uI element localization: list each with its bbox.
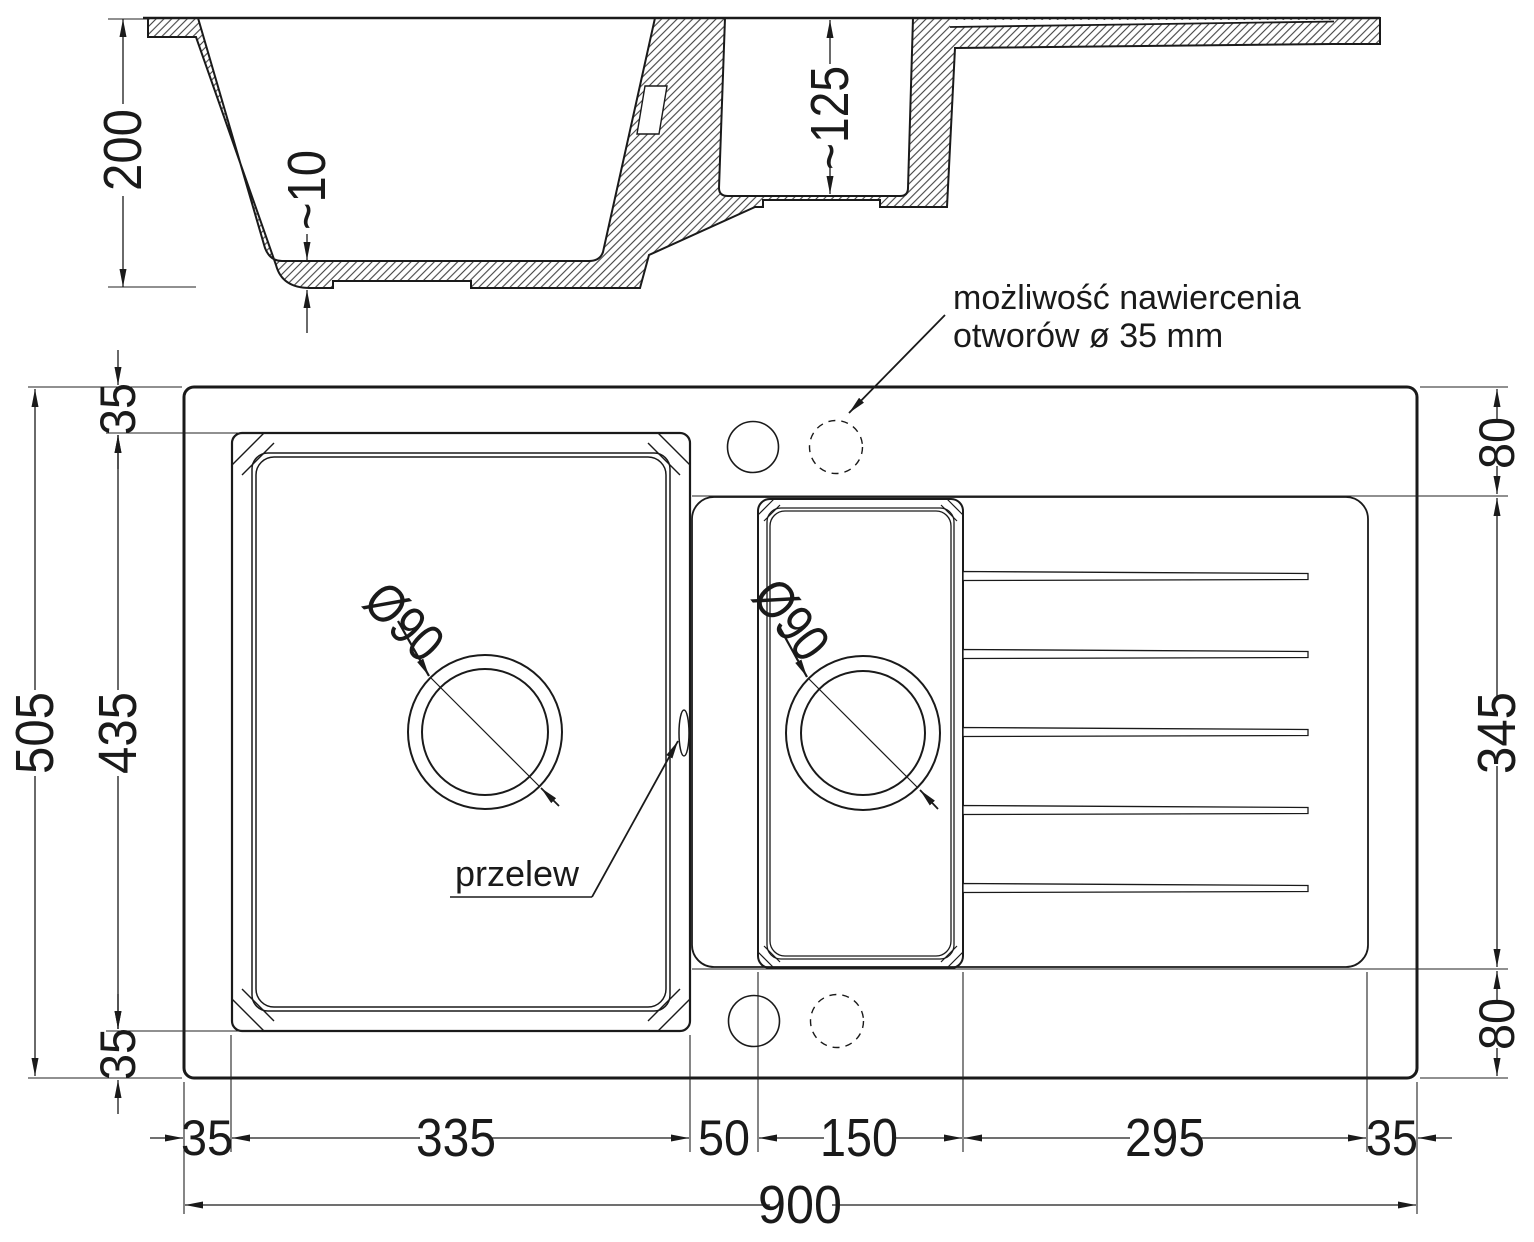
dim-small-bowl-depth: ~125 [800,20,860,194]
dim-total-width: 900 [185,1175,1416,1235]
plan-view: Ø90 Ø90 [184,279,1417,1078]
bottom-seg-label: 335 [416,1108,496,1168]
dim-bowl-height: 435 [88,435,148,1029]
drill-note-line2: otworów ø 35 mm [953,317,1223,355]
right-top-label: 80 [1469,417,1525,469]
bottom-seg-label: 35 [1366,1110,1418,1166]
dim-right-bottom: 80 [1469,971,1525,1076]
dim-total-height: 505 [5,389,65,1076]
bottom-seg-label: 150 [820,1108,898,1168]
dim-top-inset: 35 [90,350,146,469]
right-middle-label: 345 [1467,692,1527,774]
drainer-groove [963,572,1308,581]
bowl-height-label: 435 [88,692,148,774]
small-bowl-depth-label: ~125 [800,66,860,170]
total-height-label: 505 [5,692,65,774]
dim-bottom-row: 35 335 50 150 295 35 [150,1108,1452,1168]
sink-technical-drawing: 200 ~10 ~125 [0,0,1534,1242]
bottom-seg-label: 50 [698,1110,750,1166]
top-inset-label: 35 [90,383,146,435]
bottom-seg-label: 295 [1125,1108,1205,1168]
dim-base-thickness: ~10 [277,150,337,333]
dim-section-depth: 200 [93,19,196,287]
drainer-groove [963,650,1308,659]
base-thickness-label: ~10 [277,150,337,230]
overflow-label: przelew [455,853,580,894]
section-depth-label: 200 [93,109,153,191]
total-width-label: 900 [758,1175,842,1235]
drawing-canvas: 200 ~10 ~125 [0,0,1534,1242]
bottom-seg-label: 35 [181,1110,233,1166]
dim-right-top: 80 [1469,389,1525,494]
bottom-inset-label: 35 [90,1028,146,1080]
dim-bottom-inset: 35 [90,994,146,1114]
right-bottom-label: 80 [1469,998,1525,1050]
drill-note-line1: możliwość nawiercenia [953,279,1301,317]
drainer-groove [963,884,1308,893]
dim-right-middle: 345 [1467,498,1527,967]
drainer-groove [963,728,1308,737]
drainer-groove [963,806,1308,815]
